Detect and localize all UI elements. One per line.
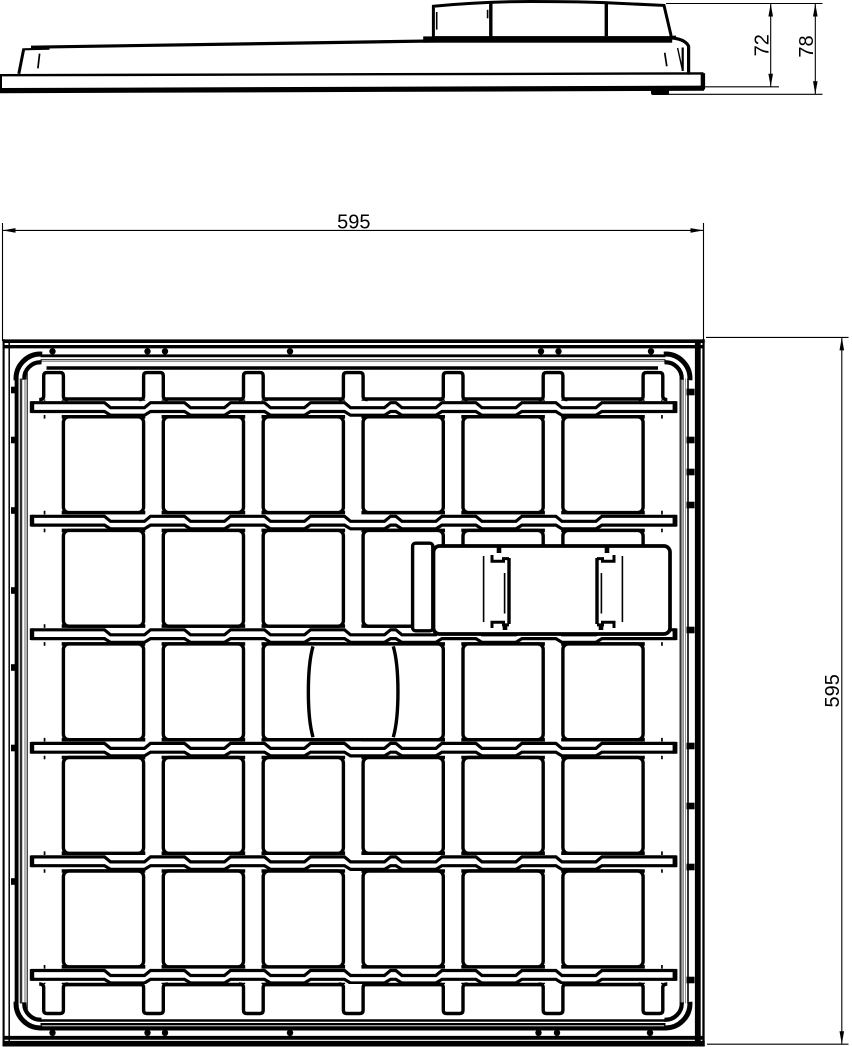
svg-text:72: 72 [751, 34, 773, 56]
svg-text:595: 595 [337, 211, 370, 233]
svg-text:595: 595 [822, 674, 844, 707]
svg-text:78: 78 [796, 35, 818, 57]
